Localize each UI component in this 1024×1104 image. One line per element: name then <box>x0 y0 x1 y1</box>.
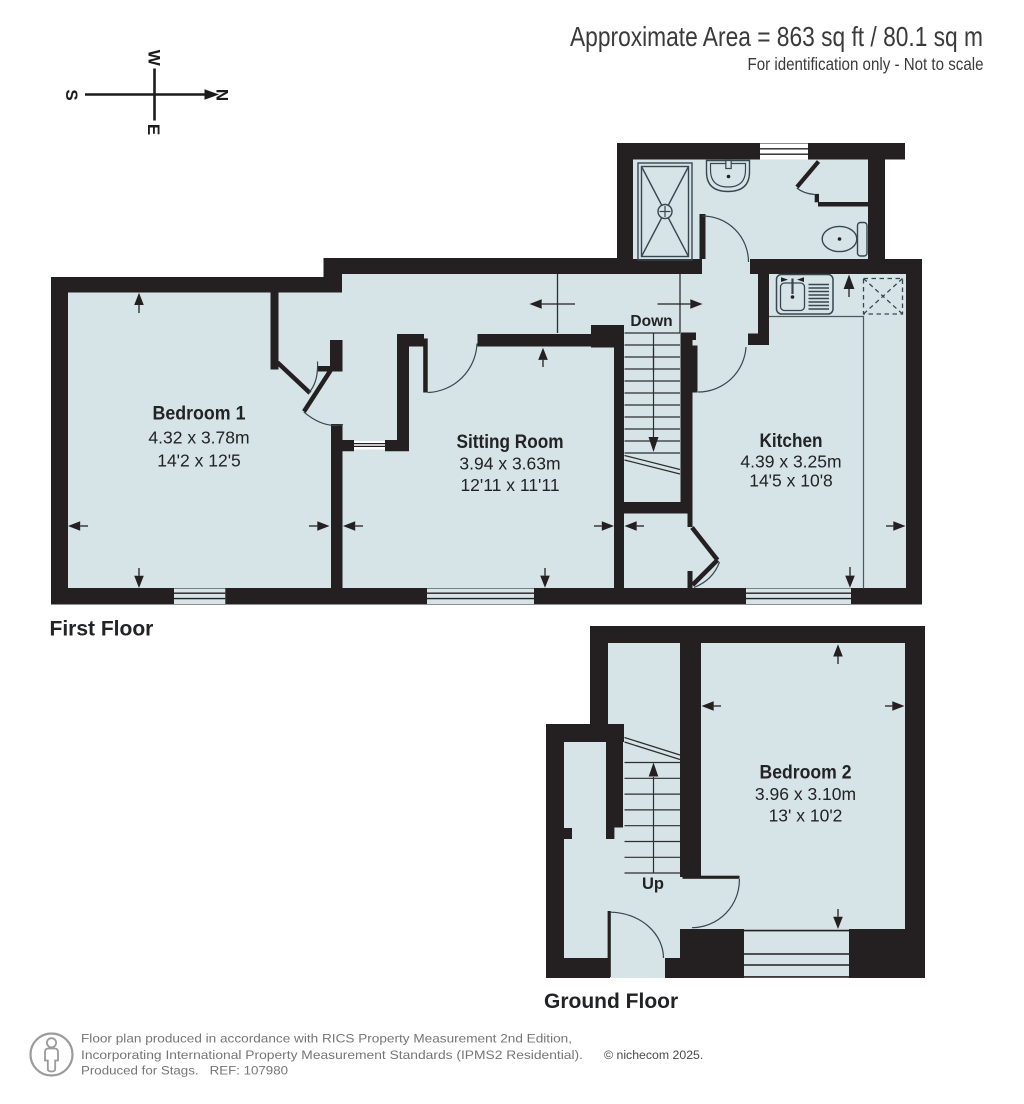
svg-text:N: N <box>213 89 232 101</box>
svg-text:4.32 x 3.78m: 4.32 x 3.78m <box>148 428 249 448</box>
svg-text:13' x 10'2: 13' x 10'2 <box>769 806 843 826</box>
svg-text:Up: Up <box>642 875 664 893</box>
svg-text:14'5 x 10'8: 14'5 x 10'8 <box>749 471 833 491</box>
svg-text:Approximate Area = 863 sq ft /: Approximate Area = 863 sq ft / 80.1 sq m <box>570 21 983 52</box>
svg-text:Bedroom 2: Bedroom 2 <box>760 763 852 784</box>
svg-text:Bedroom 1: Bedroom 1 <box>153 404 246 425</box>
svg-text:E: E <box>144 124 163 135</box>
svg-text:3.96 x 3.10m: 3.96 x 3.10m <box>755 784 856 804</box>
svg-text:Produced for Stags. REF: 107: Produced for Stags. REF: 107980 <box>81 1064 288 1078</box>
svg-text:Sitting Room: Sitting Room <box>457 432 564 453</box>
svg-text:First Floor: First Floor <box>50 618 154 641</box>
svg-text:© nichecom 2025.: © nichecom 2025. <box>604 1048 703 1062</box>
svg-text:Down: Down <box>630 313 672 330</box>
svg-text:S: S <box>62 89 81 100</box>
svg-text:W: W <box>145 50 164 67</box>
svg-text:12'11 x 11'11: 12'11 x 11'11 <box>460 475 559 495</box>
svg-text:4.39 x 3.25m: 4.39 x 3.25m <box>740 452 841 472</box>
svg-text:14'2 x 12'5: 14'2 x 12'5 <box>157 451 241 471</box>
svg-text:Ground Floor: Ground Floor <box>544 990 678 1013</box>
svg-text:Floor plan produced in accorda: Floor plan produced in accordance with R… <box>81 1032 572 1046</box>
svg-text:For identification only - Not: For identification only - Not to scale <box>748 54 984 74</box>
svg-text:Kitchen: Kitchen <box>760 431 823 452</box>
svg-text:Incorporating International Pr: Incorporating International Property Mea… <box>81 1048 583 1062</box>
svg-text:3.94 x 3.63m: 3.94 x 3.63m <box>459 454 560 474</box>
